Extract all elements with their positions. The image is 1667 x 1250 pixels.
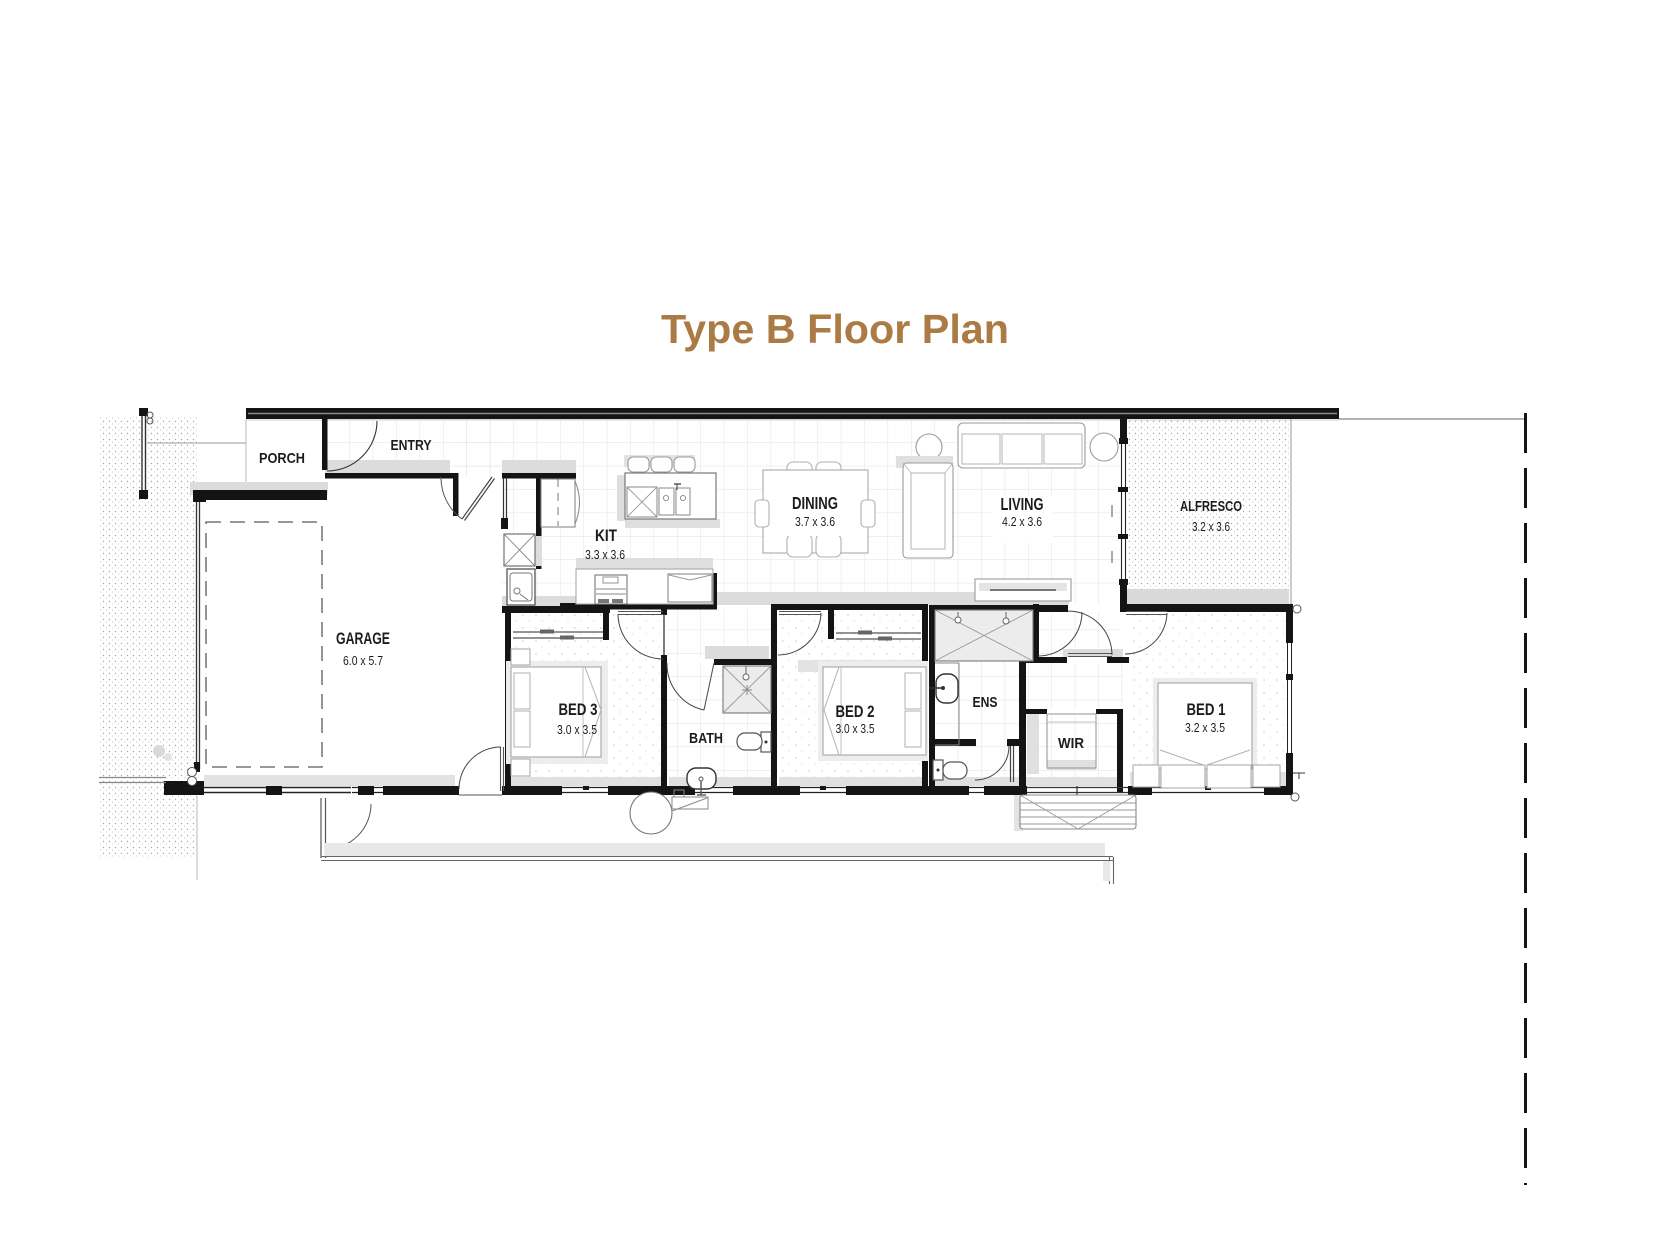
svg-text:Type B Floor Plan: Type B Floor Plan: [661, 306, 1009, 352]
svg-text:LIVING: LIVING: [1001, 494, 1044, 514]
svg-text:BED 1: BED 1: [1187, 701, 1226, 719]
svg-text:3.0 x 3.5: 3.0 x 3.5: [836, 722, 875, 736]
svg-text:6.0 x 5.7: 6.0 x 5.7: [343, 654, 383, 668]
svg-text:ENTRY: ENTRY: [391, 437, 432, 454]
svg-text:4.2 x 3.6: 4.2 x 3.6: [1002, 515, 1042, 529]
svg-text:ALFRESCO: ALFRESCO: [1180, 498, 1242, 515]
svg-text:BATH: BATH: [689, 730, 723, 747]
svg-text:3.2 x 3.6: 3.2 x 3.6: [1192, 520, 1230, 534]
svg-text:DINING: DINING: [792, 493, 838, 513]
svg-text:PORCH: PORCH: [259, 450, 305, 467]
svg-text:3.2 x 3.5: 3.2 x 3.5: [1185, 721, 1225, 735]
svg-text:BED 3: BED 3: [559, 701, 598, 719]
svg-text:BED 2: BED 2: [836, 703, 875, 721]
svg-text:GARAGE: GARAGE: [336, 629, 390, 648]
svg-text:ENS: ENS: [973, 694, 998, 711]
svg-text:3.3 x 3.6: 3.3 x 3.6: [585, 548, 625, 562]
svg-text:WIR: WIR: [1058, 735, 1084, 752]
svg-text:KIT: KIT: [595, 526, 617, 545]
svg-text:3.0 x 3.5: 3.0 x 3.5: [557, 723, 597, 737]
svg-text:3.7 x 3.6: 3.7 x 3.6: [795, 515, 835, 529]
